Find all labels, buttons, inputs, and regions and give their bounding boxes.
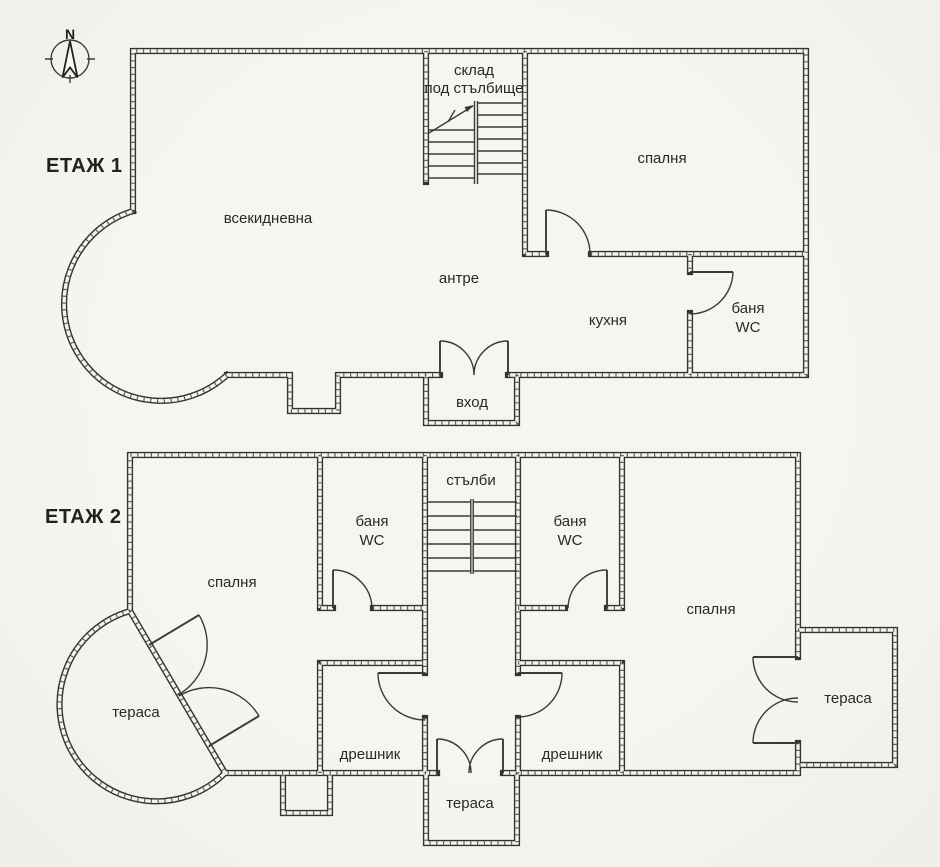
floor-plan-drawing: N (0, 0, 940, 867)
door-bath-left-f2 (333, 570, 372, 608)
room-label-entrance: вход (456, 394, 488, 411)
door-bath-right-f2 (568, 570, 607, 608)
door-closet-left (378, 673, 425, 720)
compass-north-label: N (65, 26, 75, 42)
floor1-title: ЕТАЖ 1 (46, 155, 123, 177)
room-label-closet-right: дрешник (542, 746, 603, 763)
floor1-plan: ЕТАЖ 1 склад под стълбище спалня всекидн… (46, 51, 806, 423)
door-bedroom-right-terrace-french (753, 657, 798, 743)
compass-rose: N (45, 26, 95, 83)
room-label-terrace-right: тераса (824, 690, 872, 707)
room-label-bath-right-line2: WC (558, 532, 583, 549)
door-bedroom-f1 (546, 210, 590, 254)
room-label-bedroom-f1: спалня (637, 150, 686, 167)
floor2-labels: ЕТАЖ 2 стълби баня WC баня WC спалня спа… (45, 472, 872, 812)
door-corridor-terrace-french (437, 739, 503, 773)
floor1-staircase (428, 101, 523, 184)
floor2-plan: ЕТАЖ 2 стълби баня WC баня WC спалня спа… (45, 455, 895, 843)
door-entrance-french-f1 (440, 341, 508, 375)
room-label-bath-left-line1: баня (356, 513, 389, 530)
room-label-storage-line1: склад (454, 62, 494, 79)
compass-needle (63, 41, 78, 78)
room-label-terrace-left: тераса (112, 704, 160, 721)
room-label-bedroom-left: спалня (207, 574, 256, 591)
floor1-walls (64, 51, 806, 423)
door-bathroom-f1 (690, 272, 733, 314)
room-label-stairs: стълби (446, 472, 495, 489)
room-label-bath-right-line1: баня (554, 513, 587, 530)
room-label-bath-f1-line2: WC (736, 319, 761, 336)
floor2-staircase (427, 499, 517, 574)
room-label-terrace-bottom: тераса (446, 795, 494, 812)
room-label-hall: антре (439, 270, 479, 287)
door-bedroom-left-terrace-french (149, 615, 259, 746)
room-label-bath-f1-line1: баня (732, 300, 765, 317)
room-label-storage-line2: под стълбище (424, 80, 523, 97)
room-label-closet-left: дрешник (340, 746, 401, 763)
room-label-bath-left-line2: WC (360, 532, 385, 549)
floor1-labels: ЕТАЖ 1 склад под стълбище спалня всекидн… (46, 62, 765, 411)
floor2-title: ЕТАЖ 2 (45, 506, 122, 528)
room-label-kitchen: кухня (589, 312, 627, 329)
door-closet-right (518, 673, 562, 717)
room-label-bedroom-right: спалня (686, 601, 735, 618)
floor-plan-page: N (0, 0, 940, 867)
room-label-living: всекидневна (224, 210, 313, 227)
floor2-walls (60, 455, 895, 843)
